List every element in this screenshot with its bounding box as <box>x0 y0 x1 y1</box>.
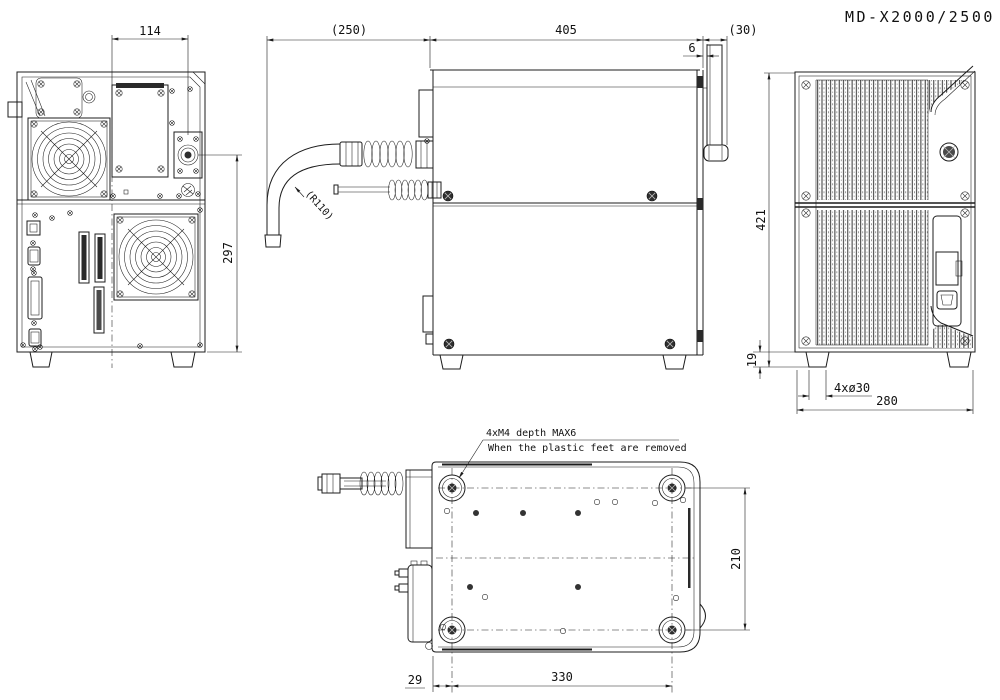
dim-bottom: 29 330 210 <box>405 488 750 692</box>
rear-power-connector <box>174 132 202 178</box>
front-vent-upper <box>816 80 928 200</box>
dim-depth-label: 405 <box>555 23 577 37</box>
note-tap-label: 4xM4 depth MAX6 <box>486 428 576 439</box>
bottom-side-bump <box>700 604 706 628</box>
front-foot-left <box>806 352 829 367</box>
dim-foot-offset-label: 29 <box>408 673 422 687</box>
rear-lower-fan <box>114 214 198 300</box>
front-knob <box>940 143 958 161</box>
bottom-connector-block-lower <box>395 561 433 650</box>
side-handle <box>703 45 728 161</box>
technical-drawing-page: MD-X2000/2500 <box>0 0 1000 700</box>
mounting-note: 4xM4 depth MAX6 When the plastic feet ar… <box>459 428 687 478</box>
dim-front-height: 421 <box>754 73 795 367</box>
front-terminal-panel <box>933 216 962 326</box>
rear-side-latch <box>8 102 22 117</box>
dim-pitch-y-label: 210 <box>729 548 743 570</box>
rear-foot-left <box>30 352 52 367</box>
dim-front-width-label: 280 <box>876 394 898 408</box>
side-foot-right <box>663 355 686 369</box>
bottom-cable <box>318 472 403 495</box>
dim-pitch-x-label: 330 <box>551 670 573 684</box>
dim-foot-diameter: 4xø30 <box>798 370 872 400</box>
dim-rear-height-label: 297 <box>221 242 235 264</box>
dim-cable-clearance-label: (250) <box>331 23 367 37</box>
drawing-title: MD-X2000/2500 <box>845 8 995 26</box>
rear-io-connectors <box>27 221 105 351</box>
rear-round-vent <box>182 184 195 197</box>
note-condition-label: When the plastic feet are removed <box>488 443 687 454</box>
rear-upper-fan <box>28 118 110 200</box>
bottom-holes <box>440 497 685 633</box>
rear-view: 114 297 <box>8 24 242 368</box>
rear-vent-plug <box>83 91 95 103</box>
bottom-connector-block-upper <box>406 470 432 548</box>
cable-radius-label: (R110) <box>303 189 335 223</box>
dim-gap-label: 6 <box>688 41 695 55</box>
rear-foot-right <box>171 352 195 367</box>
dim-handle-label: (30) <box>729 23 758 37</box>
front-foot-right <box>947 352 971 367</box>
side-fiber-cable: (R110) <box>265 141 433 247</box>
front-vent-lower <box>816 210 928 345</box>
feet-callout-label: 4xø30 <box>834 381 870 395</box>
dim-side-top: (250) 405 6 (30) <box>267 23 757 228</box>
dim-foot-height: 19 <box>745 340 809 379</box>
front-view: 421 19 4xø30 280 <box>745 66 975 414</box>
side-view: (R110) (250) <box>265 23 757 369</box>
rear-top-cover-panel <box>26 78 82 118</box>
dim-foot-height-label: 19 <box>745 353 759 367</box>
dim-front-width: 280 <box>797 370 973 414</box>
drawing-canvas: MD-X2000/2500 <box>0 0 1000 700</box>
rear-service-panel <box>112 83 168 177</box>
dim-rear-width-label: 114 <box>139 24 161 38</box>
side-signal-cable <box>334 180 441 200</box>
side-foot-left <box>440 355 463 369</box>
bottom-view: 4xM4 depth MAX6 When the plastic feet ar… <box>318 428 750 694</box>
side-rear-connector-blocks <box>419 90 433 344</box>
dim-front-height-label: 421 <box>754 209 768 231</box>
